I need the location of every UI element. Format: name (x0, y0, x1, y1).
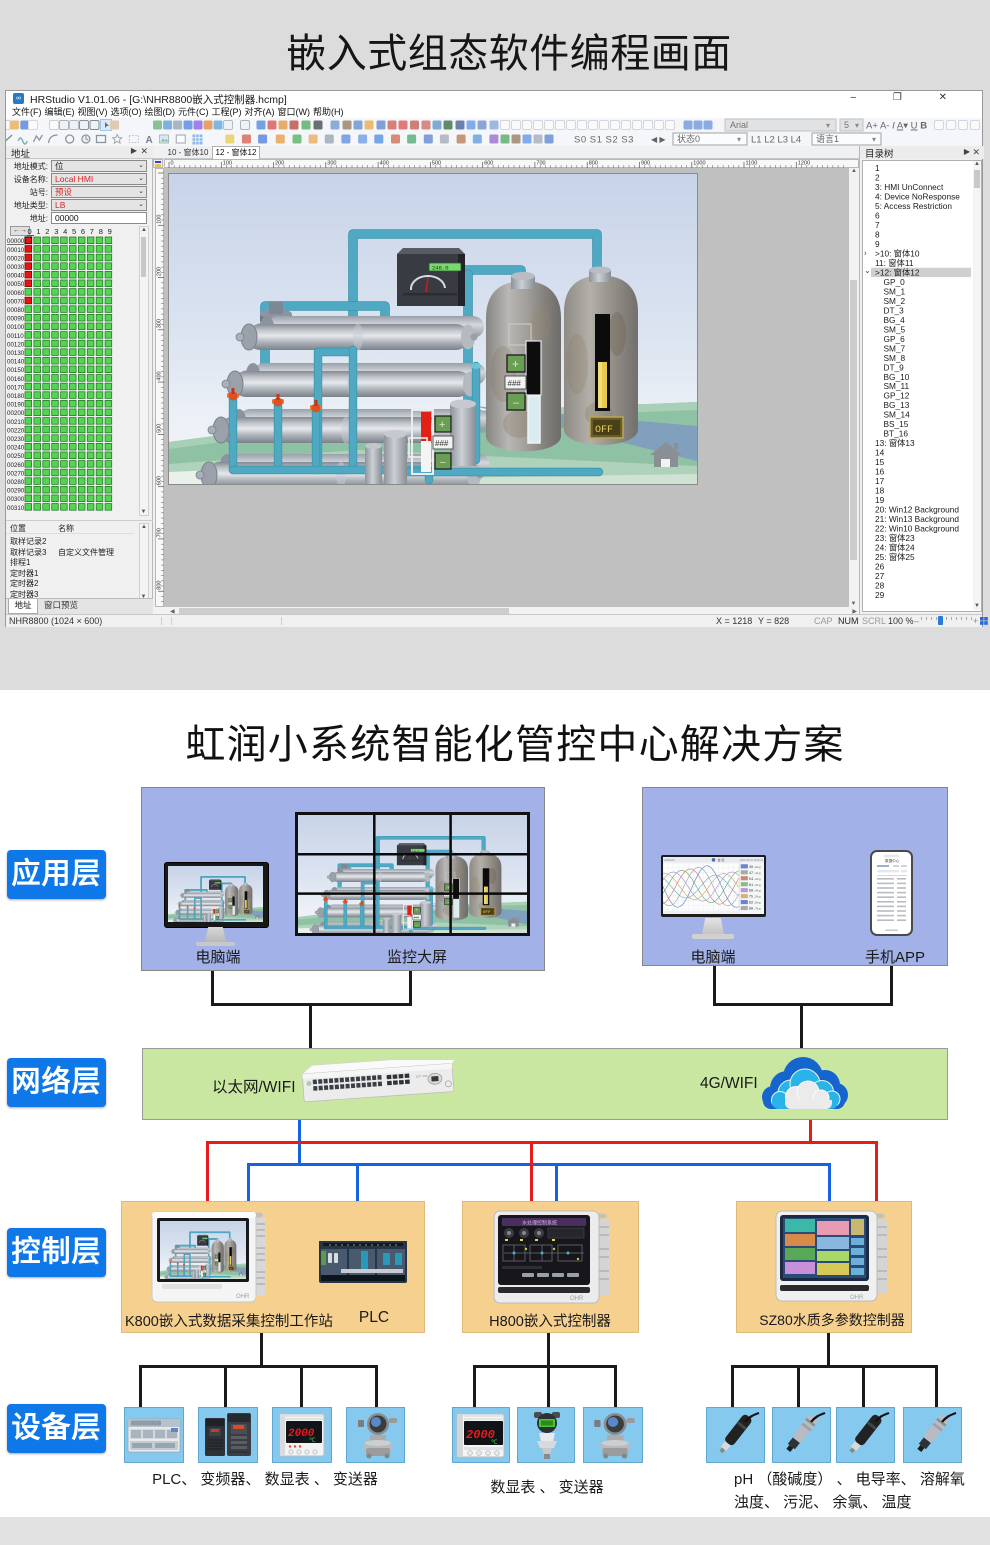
svg-text:0: 0 (171, 161, 174, 167)
svg-text:00090: 00090 (7, 316, 25, 323)
svg-text:00220: 00220 (7, 427, 25, 434)
svg-text:100: 100 (223, 161, 232, 167)
svg-text:00260: 00260 (7, 462, 25, 469)
svg-text:00200: 00200 (7, 410, 25, 417)
svg-text:SM_8: SM_8 (884, 353, 906, 363)
svg-text:A+ A- I A▾ U B: A+ A- I A▾ U B (866, 121, 927, 132)
svg-text:18: 18 (875, 486, 885, 496)
svg-text:00150: 00150 (7, 367, 25, 374)
svg-text:00010: 00010 (7, 247, 25, 254)
svg-text:›: › (864, 248, 867, 257)
svg-text:600: 600 (157, 476, 163, 485)
svg-text:▾: ▾ (855, 121, 859, 130)
svg-text:900: 900 (641, 161, 650, 167)
svg-text:700: 700 (157, 528, 163, 537)
svg-text:700: 700 (536, 161, 545, 167)
svg-text:00280: 00280 (7, 479, 25, 486)
svg-text:00240: 00240 (7, 445, 25, 452)
svg-text:00040: 00040 (7, 273, 25, 280)
svg-text:17: 17 (875, 476, 885, 486)
svg-text:100: 100 (157, 215, 163, 224)
svg-text:S0 S1 S2 S3: S0 S1 S2 S3 (574, 135, 634, 146)
svg-text:800: 800 (157, 581, 163, 590)
svg-text:SM_11: SM_11 (884, 381, 910, 391)
svg-text:◀ ▶: ◀ ▶ (651, 135, 666, 144)
svg-text:A: A (146, 135, 153, 146)
svg-text:6: 6 (875, 211, 880, 221)
svg-text:00050: 00050 (7, 281, 25, 288)
svg-text:2: 2 (875, 173, 880, 183)
svg-text:600: 600 (484, 161, 493, 167)
svg-text:00120: 00120 (7, 341, 25, 348)
svg-text:20: Win12 Background: 20: Win12 Background (875, 505, 959, 515)
svg-text:00190: 00190 (7, 402, 25, 409)
svg-text:22: Win10 Background: 22: Win10 Background (875, 523, 959, 533)
svg-text:00180: 00180 (7, 393, 25, 400)
svg-text:▾: ▾ (826, 121, 830, 130)
svg-text:9: 9 (875, 239, 880, 249)
svg-text:Arial: Arial (730, 120, 748, 130)
svg-text:BT_16: BT_16 (884, 429, 909, 439)
svg-text:语言1: 语言1 (816, 133, 839, 144)
svg-text:00300: 00300 (7, 496, 25, 503)
svg-text:00170: 00170 (7, 384, 25, 391)
svg-text:800: 800 (589, 161, 598, 167)
svg-text:5: 5 (844, 120, 849, 130)
svg-text:24: 窗体24: 24: 窗体24 (875, 542, 915, 552)
svg-text:29: 29 (875, 590, 885, 600)
svg-text:00210: 00210 (7, 419, 25, 426)
svg-text:28: 28 (875, 580, 885, 590)
svg-text:▾: ▾ (872, 135, 876, 144)
svg-text:00030: 00030 (7, 264, 25, 271)
svg-text:BG_4: BG_4 (884, 315, 906, 325)
svg-text:DT_3: DT_3 (884, 305, 905, 315)
svg-text:7: 7 (875, 220, 880, 230)
svg-text:15: 15 (875, 457, 885, 467)
svg-text:00000: 00000 (7, 238, 25, 245)
svg-text:>12: 窗体12: >12: 窗体12 (875, 268, 920, 278)
svg-text:00070: 00070 (7, 298, 25, 305)
svg-text:00250: 00250 (7, 453, 25, 460)
svg-text:500: 500 (432, 161, 441, 167)
svg-text:00140: 00140 (7, 359, 25, 366)
svg-text:300: 300 (327, 161, 336, 167)
svg-text:00020: 00020 (7, 255, 25, 262)
svg-text:00080: 00080 (7, 307, 25, 314)
svg-text:1200: 1200 (798, 161, 810, 167)
svg-text:300: 300 (157, 319, 163, 328)
svg-text:19: 19 (875, 495, 885, 505)
svg-text:00270: 00270 (7, 470, 25, 477)
svg-text:00160: 00160 (7, 376, 25, 383)
svg-text:1100: 1100 (746, 161, 758, 167)
svg-text:>10: 窗体10: >10: 窗体10 (875, 249, 920, 259)
svg-text:SM_1: SM_1 (884, 286, 906, 296)
svg-text:500: 500 (157, 424, 163, 433)
svg-text:DT_9: DT_9 (884, 362, 905, 372)
svg-text:00110: 00110 (7, 333, 24, 340)
svg-text:GP_12: GP_12 (884, 391, 910, 401)
svg-text:400: 400 (380, 161, 389, 167)
svg-text:11: 窗体11: 11: 窗体11 (875, 258, 914, 268)
svg-text:⌄: ⌄ (864, 266, 871, 275)
svg-text:状态0: 状态0 (677, 133, 700, 144)
svg-text:00290: 00290 (7, 488, 25, 495)
svg-text:00100: 00100 (7, 324, 25, 331)
svg-text:1000: 1000 (693, 161, 705, 167)
svg-text:13: 窗体13: 13: 窗体13 (875, 438, 915, 448)
svg-text:L1 L2 L3 L4: L1 L2 L3 L4 (751, 135, 801, 146)
svg-text:00060: 00060 (7, 290, 25, 297)
svg-text:00310: 00310 (7, 505, 25, 512)
svg-text:1: 1 (875, 163, 880, 173)
svg-text:00130: 00130 (7, 350, 25, 357)
svg-text:00230: 00230 (7, 436, 25, 443)
svg-text:4: Device NoResponse: 4: Device NoResponse (875, 192, 960, 202)
svg-text:5: Access Restriction: 5: Access Restriction (875, 201, 952, 211)
svg-text:▾: ▾ (737, 135, 741, 144)
svg-text:23: 窗体23: 23: 窗体23 (875, 533, 915, 543)
svg-text:25: 窗体25: 25: 窗体25 (875, 552, 915, 562)
svg-text:SM_14: SM_14 (884, 410, 911, 420)
svg-text:27: 27 (875, 571, 885, 581)
svg-text:200: 200 (275, 161, 284, 167)
svg-text:SM_7: SM_7 (884, 343, 906, 353)
svg-text:SM_2: SM_2 (884, 296, 906, 306)
svg-text:400: 400 (157, 371, 163, 380)
svg-text:GP_6: GP_6 (884, 334, 906, 344)
svg-text:14: 14 (875, 448, 885, 458)
svg-text:200: 200 (157, 267, 163, 276)
svg-text:BG_13: BG_13 (884, 400, 910, 410)
